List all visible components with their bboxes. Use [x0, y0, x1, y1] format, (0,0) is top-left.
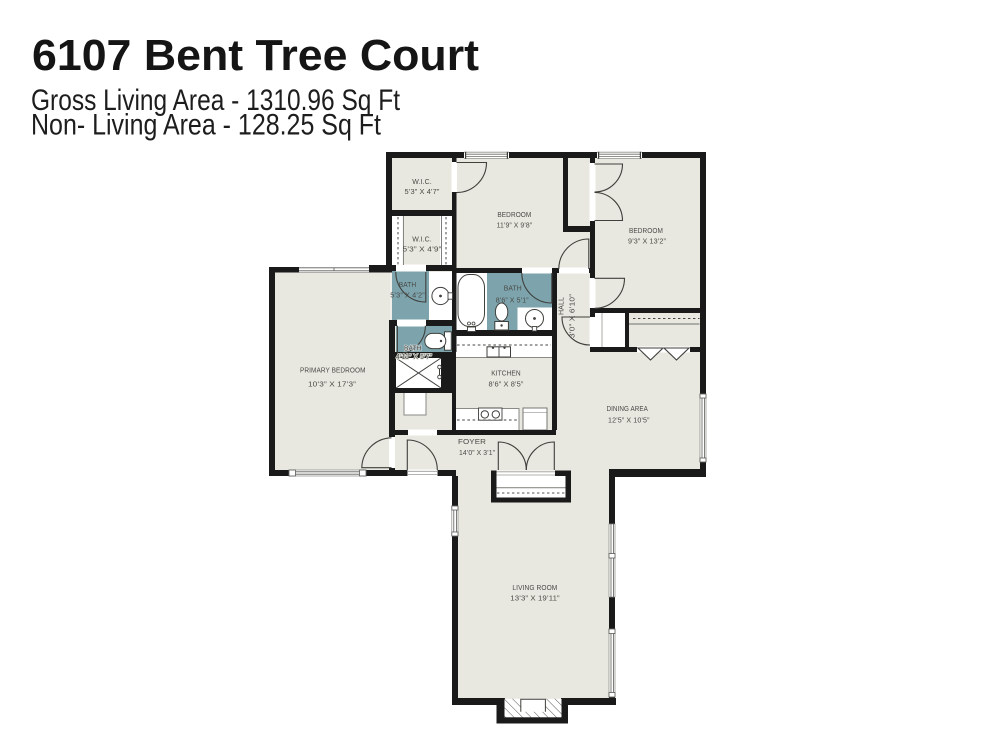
svg-text:5’3” X 4’9”: 5’3” X 4’9” [403, 245, 443, 254]
svg-text:BATH: BATH [504, 284, 522, 293]
svg-text:13’3” X 19’11”: 13’3” X 19’11” [510, 594, 560, 603]
svg-text:BATH: BATH [399, 280, 417, 289]
svg-text:LIVING ROOM: LIVING ROOM [512, 583, 557, 592]
svg-text:HALL: HALL [557, 297, 566, 315]
svg-text:BEDROOM: BEDROOM [629, 226, 663, 235]
svg-text:PRIMARY BEDROOM: PRIMARY BEDROOM [300, 366, 366, 375]
svg-text:FOYER: FOYER [458, 437, 486, 446]
svg-text:11’9” X 9’8”: 11’9” X 9’8” [497, 220, 533, 229]
svg-text:9’3” X 13’2”: 9’3” X 13’2” [628, 237, 666, 246]
svg-text:12’5” X 10’5”: 12’5” X 10’5” [608, 416, 650, 425]
svg-text:KITCHEN: KITCHEN [491, 369, 521, 378]
svg-text:DINING AREA: DINING AREA [606, 404, 648, 413]
svg-text:10’3” X 17’3”: 10’3” X 17’3” [308, 379, 357, 388]
svg-text:3’0” X 6’10”: 3’0” X 6’10” [568, 293, 577, 338]
svg-text:14’0” X 3’1”: 14’0” X 3’1” [459, 448, 495, 457]
svg-text:BEDROOM: BEDROOM [497, 210, 531, 219]
svg-text:6107 Bent Tree Court: 6107 Bent Tree Court [32, 32, 479, 80]
svg-text:Non- Living Area - 128.25 Sq F: Non- Living Area - 128.25 Sq Ft [31, 109, 382, 142]
svg-text:W.I.C.: W.I.C. [412, 235, 432, 244]
svg-text:8’6” X 5’1”: 8’6” X 5’1” [496, 296, 529, 305]
svg-text:8’6” X 8’5”: 8’6” X 8’5” [489, 380, 525, 389]
svg-text:5’3” X 4’7”: 5’3” X 4’7” [405, 187, 441, 196]
svg-text:W.I.C.: W.I.C. [412, 177, 432, 186]
svg-text:4’11” X 5’7”: 4’11” X 5’7” [396, 352, 432, 361]
svg-text:5’3” X 4’2”: 5’3” X 4’2” [390, 291, 425, 300]
